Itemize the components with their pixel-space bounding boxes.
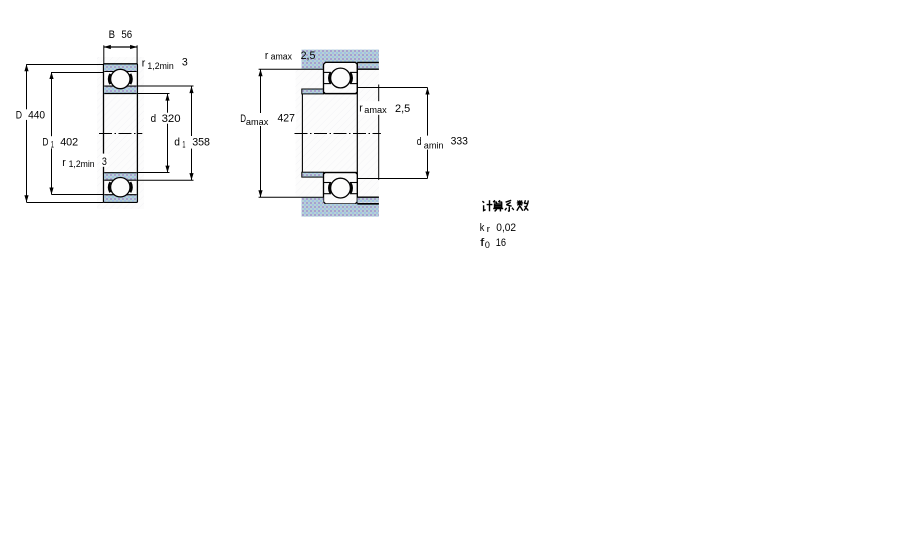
svg-text:440: 440 (28, 109, 45, 121)
svg-text:56: 56 (121, 29, 132, 41)
svg-text:1,2min: 1,2min (69, 159, 95, 169)
svg-text:3: 3 (182, 56, 188, 68)
svg-text:0,02: 0,02 (496, 222, 516, 234)
svg-text:r: r (487, 224, 490, 234)
svg-text:r: r (265, 50, 269, 62)
svg-text:d: d (417, 136, 422, 148)
svg-text:r: r (359, 102, 363, 114)
svg-text:16: 16 (496, 237, 506, 249)
svg-text:1,2min: 1,2min (147, 61, 173, 71)
svg-text:amax: amax (271, 52, 293, 62)
svg-text:amin: amin (424, 141, 444, 151)
svg-text:k: k (480, 222, 485, 234)
svg-text:320: 320 (162, 113, 181, 125)
svg-text:402: 402 (60, 136, 78, 148)
svg-text:2,5: 2,5 (301, 50, 316, 62)
svg-text:r: r (142, 57, 146, 69)
svg-text:333: 333 (451, 136, 468, 148)
svg-text:3: 3 (102, 156, 107, 168)
svg-text:d: d (174, 136, 180, 148)
svg-text:D: D (16, 109, 22, 121)
svg-text:D: D (42, 136, 48, 148)
svg-text:1: 1 (51, 140, 54, 150)
svg-text:B: B (109, 29, 115, 41)
svg-text:amax: amax (246, 117, 269, 127)
svg-text:amax: amax (364, 105, 387, 115)
svg-text:r: r (62, 157, 66, 169)
svg-text:d: d (151, 113, 157, 125)
svg-text:358: 358 (192, 136, 210, 148)
svg-text:427: 427 (278, 113, 295, 125)
svg-text:0: 0 (485, 240, 490, 250)
svg-text:1: 1 (182, 139, 185, 149)
svg-text:2,5: 2,5 (395, 103, 410, 115)
